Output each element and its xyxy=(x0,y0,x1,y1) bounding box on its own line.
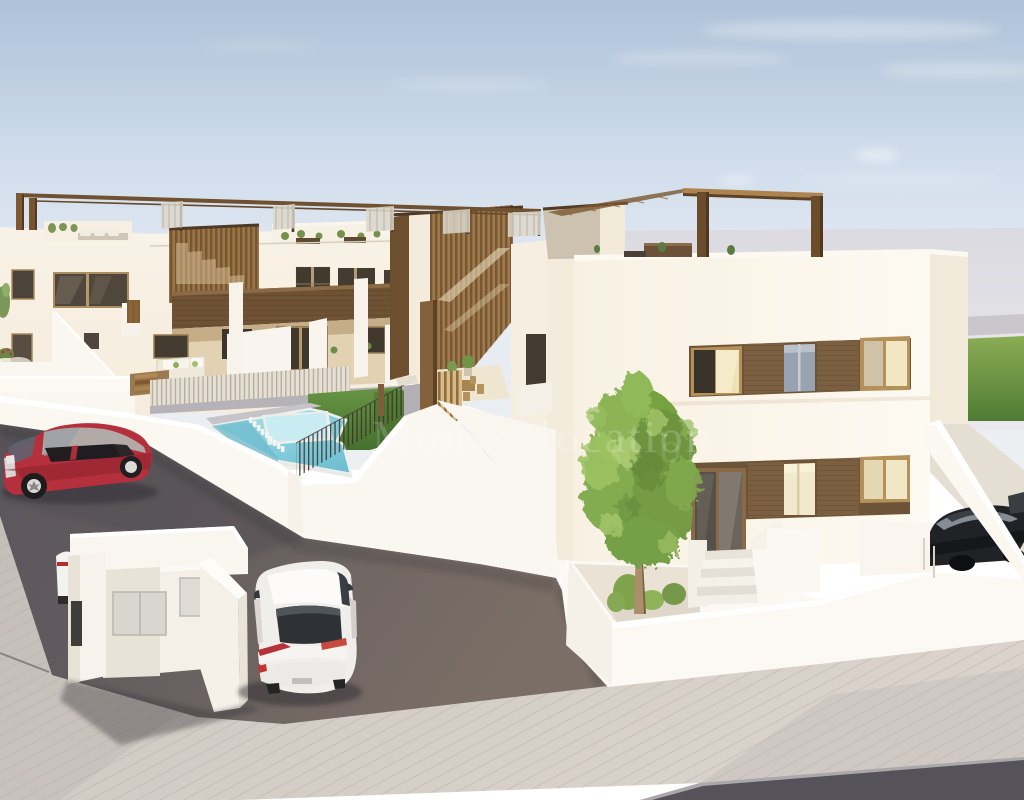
svg-text:ol: ol xyxy=(660,426,701,472)
